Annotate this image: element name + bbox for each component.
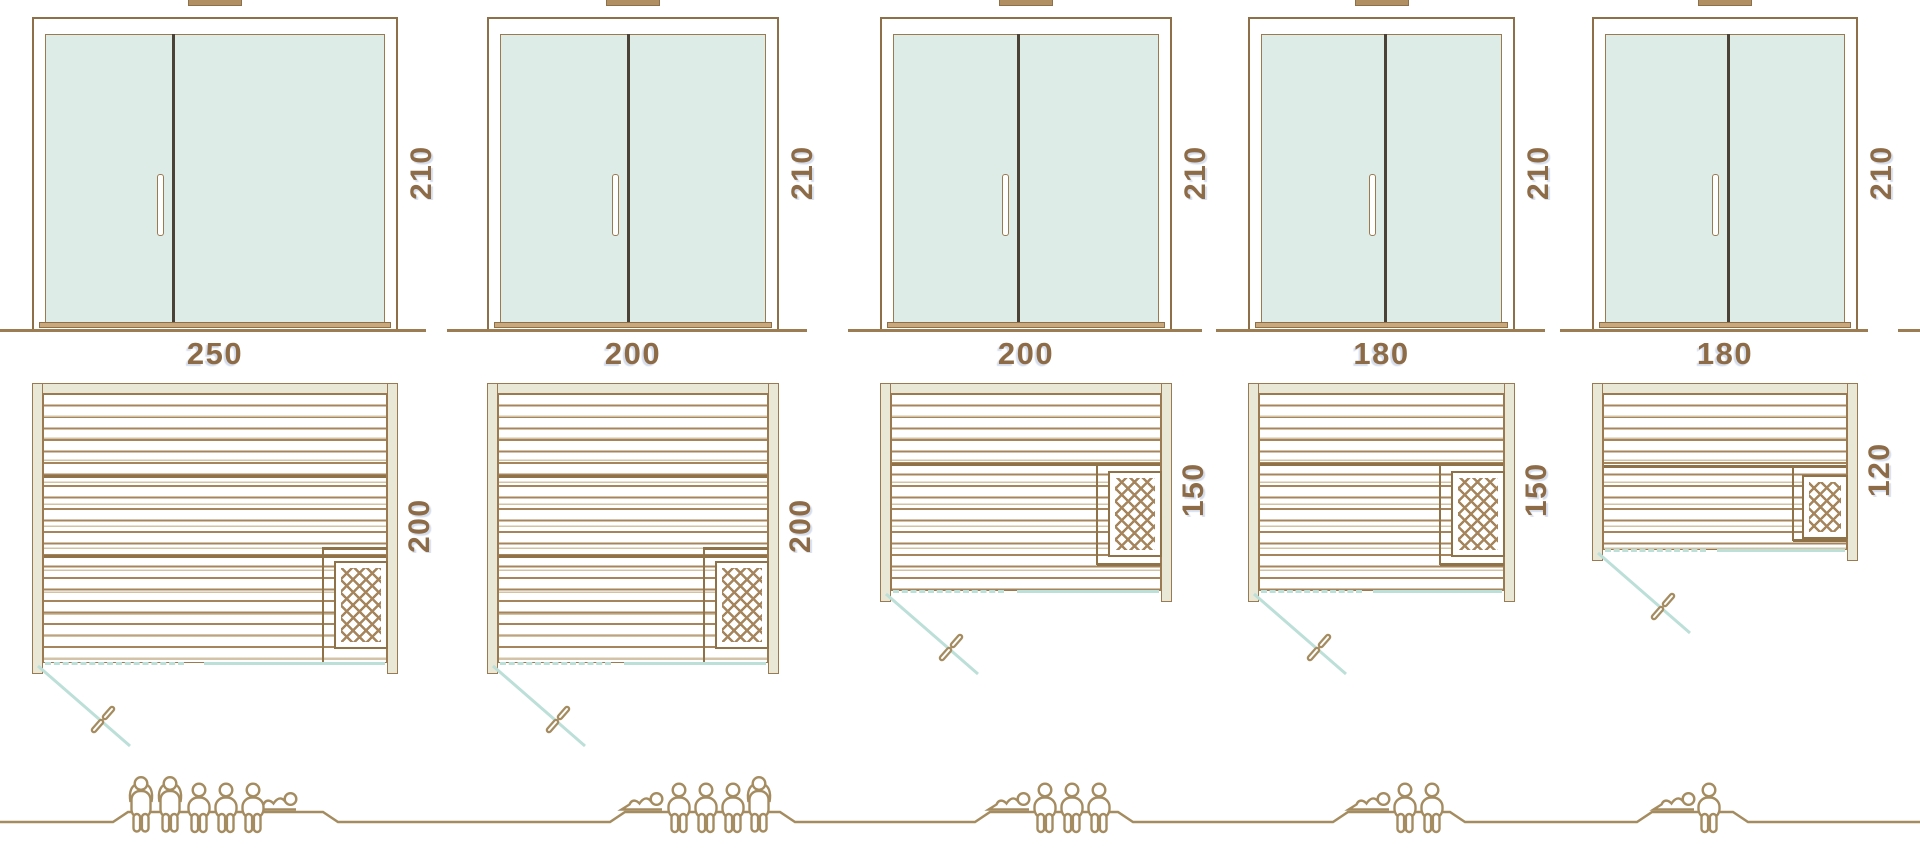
capacity-row: [0, 750, 1920, 856]
person-lying-icon: [622, 793, 663, 809]
person-standing-icon: [159, 777, 181, 831]
person-seated-icon: [1089, 784, 1110, 832]
door-elevation: [1248, 17, 1515, 332]
bench-edge: [1097, 563, 1161, 566]
door-swing: [1252, 594, 1382, 699]
person-standing-icon: [748, 777, 770, 831]
dim-depth-label: 150: [1519, 430, 1555, 550]
glass-panel: [500, 34, 766, 323]
person-seated-icon: [669, 784, 690, 832]
heater-lattice: [722, 568, 762, 642]
person-seated-icon: [189, 784, 210, 832]
glass-front-dashed-line: [1605, 549, 1706, 552]
terrain-line: [0, 812, 1920, 822]
glass-panel: [1605, 34, 1845, 323]
dim-width-label: 250: [32, 336, 398, 372]
capacity-group-2: [622, 777, 771, 832]
bench-edge: [323, 547, 387, 550]
dim-width-label: 200: [487, 336, 779, 372]
sauna-unit-1: 210 250: [32, 0, 398, 856]
door-elevation: [487, 17, 779, 332]
bench-edge: [703, 547, 706, 663]
heater-lattice: [1115, 478, 1155, 550]
dim-height-label: 210: [1521, 113, 1557, 233]
plan-wall-top: [32, 383, 398, 394]
bench-edge-line: [892, 463, 1160, 466]
person-seated-icon: [1062, 784, 1083, 832]
person-seated-icon: [1699, 784, 1720, 832]
ground-line: [447, 329, 807, 332]
capacity-group-4: [1349, 784, 1443, 832]
plan-wall-right: [387, 383, 398, 674]
glass-front-line: [624, 662, 766, 665]
glass-panel: [1261, 34, 1502, 323]
bench-edge: [1440, 563, 1504, 566]
door-elevation: [880, 17, 1172, 332]
heater-lattice: [1809, 482, 1841, 532]
dim-width-label: 180: [1248, 336, 1515, 372]
floor-plan: [487, 383, 779, 670]
bench-edge: [1792, 467, 1795, 541]
plan-wall-left: [32, 383, 43, 674]
bench-edge-line: [44, 475, 386, 478]
capacity-group-1: [130, 777, 296, 832]
person-seated-icon: [1035, 784, 1056, 832]
plan-wall-right: [1847, 383, 1858, 561]
door-divider: [172, 34, 175, 323]
sauna-size-diagram: 210 250: [0, 0, 1920, 856]
plan-wall-right: [1161, 383, 1172, 602]
person-seated-icon: [723, 784, 744, 832]
heater-lattice: [1458, 478, 1498, 550]
sauna-unit-3: 210 200 150: [880, 0, 1172, 856]
bench-edge: [322, 547, 325, 663]
ground-line: [848, 329, 1202, 332]
roof-vent: [1698, 0, 1752, 6]
plan-wall-right: [768, 383, 779, 674]
plan-wall-right: [1504, 383, 1515, 602]
person-seated-icon: [1395, 784, 1416, 832]
sauna-unit-2: 210 200: [487, 0, 779, 856]
plan-wall-top: [1592, 383, 1858, 394]
person-lying-icon: [1654, 793, 1695, 809]
person-lying-icon: [1349, 793, 1390, 809]
sauna-heater: [1108, 471, 1162, 557]
door-handle: [157, 174, 164, 236]
dim-height-label: 210: [785, 113, 821, 233]
dim-height-label: 210: [404, 113, 440, 233]
heater-lattice: [341, 568, 381, 642]
glass-panel: [893, 34, 1159, 323]
dim-depth-label: 150: [1176, 430, 1212, 550]
door-swing: [1596, 553, 1726, 658]
door-handle: [1002, 174, 1009, 236]
glass-front-dashed-line: [45, 662, 184, 665]
sauna-heater: [1802, 475, 1848, 539]
bench-edge: [1793, 539, 1847, 542]
plan-wall-left: [487, 383, 498, 674]
plan-wall-top: [880, 383, 1172, 394]
person-seated-icon: [243, 784, 264, 832]
dim-depth-label: 120: [1862, 410, 1898, 530]
sauna-heater: [1451, 471, 1505, 557]
door-divider: [627, 34, 630, 323]
door-handle: [612, 174, 619, 236]
door-divider: [1727, 34, 1730, 323]
person-seated-icon: [1422, 784, 1443, 832]
glass-front-line: [1017, 590, 1159, 593]
ground-line: [1216, 329, 1545, 332]
sauna-unit-5: 210 180 120: [1592, 0, 1858, 856]
door-handle: [1712, 174, 1719, 236]
bench-edge-line: [499, 555, 767, 558]
glass-front-dashed-line: [500, 662, 611, 665]
roof-vent: [188, 0, 242, 6]
sauna-heater: [715, 561, 769, 649]
bench-edge: [1096, 465, 1099, 565]
bench-edge: [1439, 465, 1442, 565]
door-divider: [1017, 34, 1020, 323]
plan-wall-top: [1248, 383, 1515, 394]
threshold: [1599, 322, 1851, 328]
person-lying-icon: [989, 793, 1030, 809]
capacity-group-3: [989, 784, 1110, 832]
dim-depth-label: 200: [783, 466, 819, 586]
sauna-heater: [334, 561, 388, 649]
roof-vent: [999, 0, 1053, 6]
bench-edge-line: [1604, 465, 1846, 468]
sauna-unit-4: 210 180 150: [1248, 0, 1515, 856]
ground-line: [1560, 329, 1868, 332]
floor-plan: [32, 383, 398, 670]
ground-line: [0, 329, 426, 332]
plan-wall-left: [1592, 383, 1603, 561]
bench-edge-line: [499, 475, 767, 478]
roof-vent: [606, 0, 660, 6]
bench-edge-line: [44, 555, 386, 558]
plan-wall-top: [487, 383, 779, 394]
door-elevation: [1592, 17, 1858, 332]
glass-front-line: [1717, 549, 1845, 552]
floor-plan: [1248, 383, 1515, 598]
glass-front-line: [204, 662, 385, 665]
door-swing: [884, 594, 1014, 699]
threshold: [39, 322, 391, 328]
roof-vent: [1355, 0, 1409, 6]
plan-wall-left: [880, 383, 891, 602]
capacity-group-5: [1654, 784, 1720, 832]
bench-edge: [704, 547, 768, 550]
glass-front-dashed-line: [893, 590, 1004, 593]
dim-height-label: 210: [1178, 113, 1214, 233]
dim-width-label: 180: [1592, 336, 1858, 372]
threshold: [494, 322, 772, 328]
floor-plan: [1592, 383, 1858, 557]
door-handle: [1369, 174, 1376, 236]
glass-panel: [45, 34, 385, 323]
bench-edge-line: [1260, 463, 1503, 466]
person-standing-icon: [130, 777, 152, 831]
glass-front-line: [1373, 590, 1502, 593]
door-divider: [1384, 34, 1387, 323]
plan-wall-left: [1248, 383, 1259, 602]
person-seated-icon: [696, 784, 717, 832]
glass-front-dashed-line: [1261, 590, 1362, 593]
person-seated-icon: [216, 784, 237, 832]
ground-line: [1898, 329, 1920, 332]
dim-height-label: 210: [1864, 113, 1900, 233]
dim-width-label: 200: [880, 336, 1172, 372]
dim-depth-label: 200: [402, 466, 438, 586]
threshold: [1255, 322, 1508, 328]
floor-plan: [880, 383, 1172, 598]
door-elevation: [32, 17, 398, 332]
threshold: [887, 322, 1165, 328]
